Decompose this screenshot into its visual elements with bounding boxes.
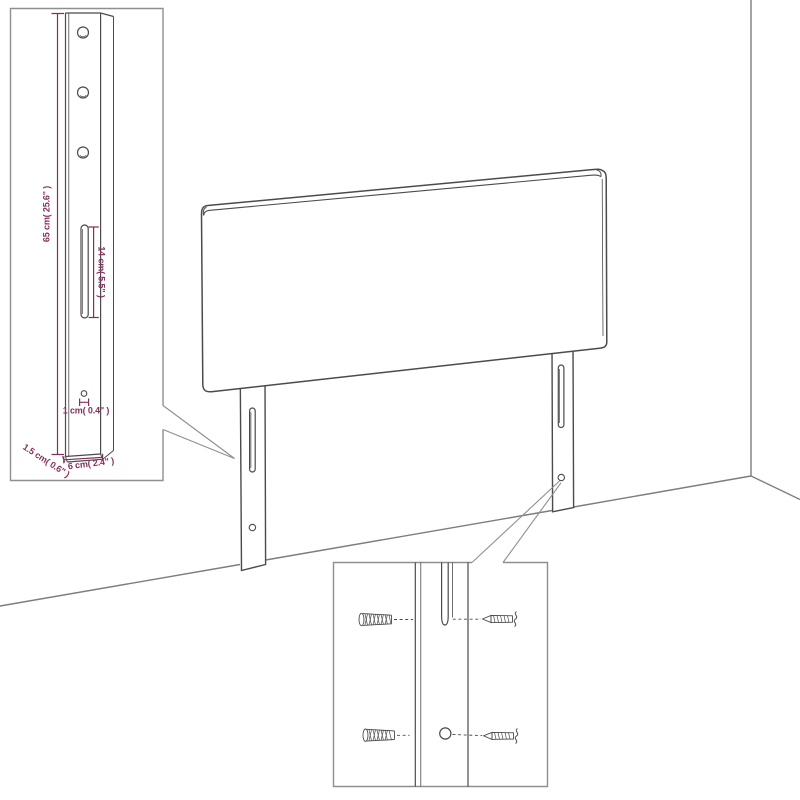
screw-threads (494, 616, 510, 623)
panel-outline (202, 169, 607, 392)
dimension-lines (52, 14, 103, 464)
hole-shade (80, 155, 86, 157)
diagram-line-art (0, 0, 800, 800)
detail-box-leg-full (11, 9, 235, 481)
plug-hatch (369, 730, 392, 741)
screw-threads (495, 733, 511, 740)
dimension-label-slot-height: 14 cm( 5.5" ) (97, 246, 106, 297)
hole-shade (80, 35, 86, 37)
plug-hatch (369, 730, 388, 741)
headboard-dimensions-diagram: 65 cm( 25.6" ) 14 cm( 5.5" ) 1 cm( 0.4" … (0, 0, 800, 800)
detail-box-mounting (334, 481, 562, 787)
screw-tip (483, 615, 492, 622)
dimension-label-hole: 1 cm( 0.4" ) (63, 407, 110, 416)
screw-tip (484, 732, 493, 739)
leg-hole-bottom (78, 147, 89, 158)
zoom-leg-hole (440, 728, 451, 739)
floor-line-right (574, 476, 751, 507)
wall-plug-icon (363, 729, 395, 741)
left-leg-board (240, 378, 265, 571)
zoom-leg-slot (442, 563, 449, 626)
leg-top-edge (66, 13, 114, 17)
callout-wedge-left (163, 406, 235, 459)
callout-line (163, 430, 235, 459)
plug-collar (359, 613, 364, 625)
leg-drawing (66, 13, 114, 462)
screw-icon (484, 729, 518, 744)
leg-hole-top (78, 27, 89, 38)
leg-hole-middle (78, 87, 89, 98)
headboard-left-leg (240, 378, 265, 571)
headboard-panel (202, 169, 607, 392)
callout-line (163, 406, 235, 459)
hole-shade (80, 95, 86, 97)
leg-slot (81, 225, 88, 318)
callout-line (503, 483, 561, 563)
leg-bottom-edge (66, 454, 101, 457)
screw-break-squiggle (514, 612, 517, 627)
wall-plug-icon (359, 613, 392, 625)
mounting-drawing (359, 563, 518, 787)
headboard-right-leg (552, 343, 574, 512)
screw-icon (483, 612, 517, 627)
detail-box-mounting-border (334, 563, 548, 787)
leg-small-hole (81, 391, 87, 397)
floor-line-corner-right (751, 476, 800, 500)
plug-collar (363, 729, 368, 741)
floor-line-left (0, 565, 240, 607)
dimension-label-height: 65 cm( 25.6" ) (43, 186, 52, 242)
assembly-dash-line (453, 735, 483, 736)
screw-break-squiggle (515, 729, 518, 744)
plug-hatch (365, 614, 388, 625)
floor-line-mid (266, 511, 552, 561)
